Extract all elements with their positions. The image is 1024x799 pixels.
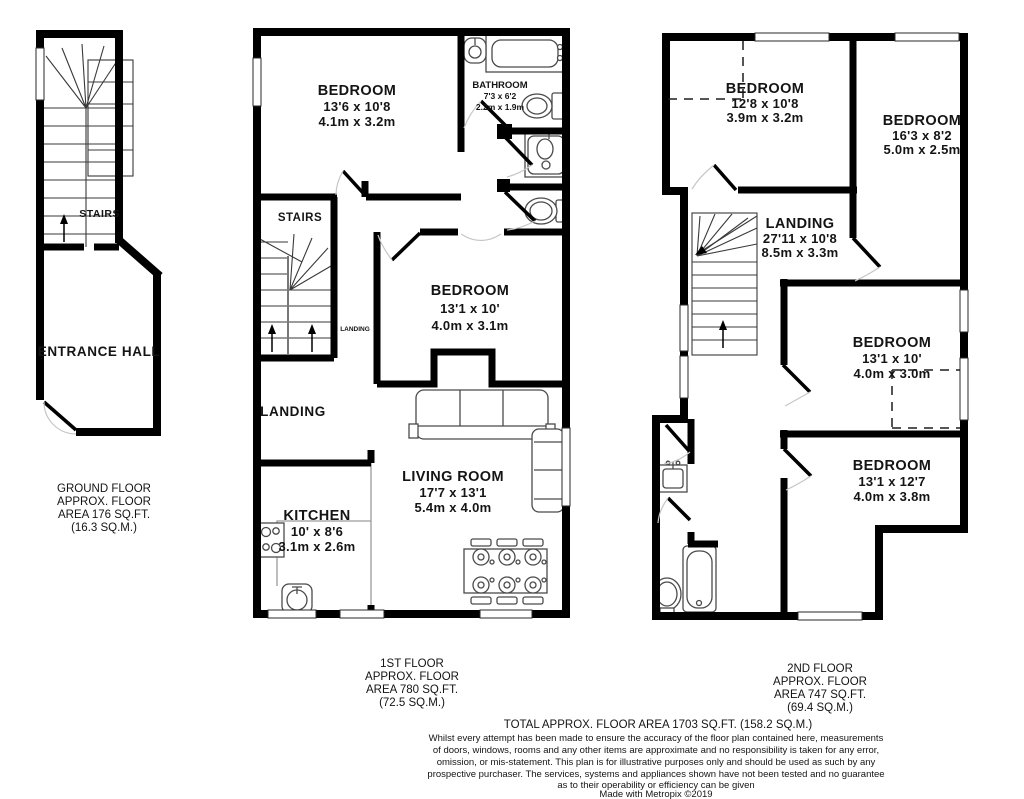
svg-text:BEDROOM: BEDROOM — [853, 458, 932, 474]
bedroom-front-label: BEDROOM 13'6 x 10'8 4.1m x 3.2m — [318, 83, 397, 129]
svg-text:7'3 x 6'2: 7'3 x 6'2 — [484, 91, 517, 101]
stairs-label: STAIRS — [79, 208, 120, 220]
svg-text:APPROX. FLOOR: APPROX. FLOOR — [57, 496, 151, 508]
dining-table-icon — [464, 539, 547, 604]
toilet-icon — [525, 198, 567, 224]
bathtub-icon — [486, 35, 566, 72]
bedroom-top-left-label: BEDROOM 12'8 x 10'8 3.9m x 3.2m — [726, 81, 805, 125]
sink-icon — [464, 38, 486, 63]
ground-floor-plan: STAIRS ENTRANCE HALL GROUND FLOOR APPROX… — [36, 30, 161, 534]
floorplan-image: STAIRS ENTRANCE HALL GROUND FLOOR APPROX… — [0, 0, 1024, 799]
svg-text:13'1 x 10': 13'1 x 10' — [862, 351, 922, 366]
total-area-text: TOTAL APPROX. FLOOR AREA 1703 SQ.FT. (15… — [504, 719, 813, 731]
kitchen-sink-icon — [282, 584, 312, 613]
svg-text:5.4m x 4.0m: 5.4m x 4.0m — [414, 500, 491, 515]
toilet-icon — [522, 93, 565, 119]
landing-label: LANDING 27'11 x 10'8 8.5m x 3.3m — [761, 216, 838, 260]
entrance-hall-label: ENTRANCE HALL — [38, 344, 161, 359]
svg-text:16'3 x 8'2: 16'3 x 8'2 — [892, 128, 952, 143]
ground-floor-walls — [36, 30, 161, 436]
svg-text:BEDROOM: BEDROOM — [853, 335, 932, 351]
ground-floor-area-caption: GROUND FLOOR APPROX. FLOOR AREA 176 SQ.F… — [57, 483, 151, 534]
svg-text:3.9m x 3.2m: 3.9m x 3.2m — [726, 110, 803, 125]
svg-text:10' x 8'6: 10' x 8'6 — [291, 524, 343, 539]
svg-text:(72.5 SQ.M.): (72.5 SQ.M.) — [379, 697, 445, 709]
svg-text:4.1m x 3.2m: 4.1m x 3.2m — [318, 114, 395, 129]
svg-text:27'11 x 10'8: 27'11 x 10'8 — [763, 231, 837, 246]
front-door — [44, 402, 76, 434]
svg-text:4.0m x 3.0m: 4.0m x 3.0m — [853, 366, 930, 381]
kitchen-label: KITCHEN 10' x 8'6 3.1m x 2.6m — [278, 508, 355, 554]
svg-text:of doors, windows, rooms and a: of doors, windows, rooms and any other i… — [433, 745, 879, 756]
footer: TOTAL APPROX. FLOOR AREA 1703 SQ.FT. (15… — [427, 719, 884, 799]
svg-text:13'1 x 12'7: 13'1 x 12'7 — [858, 474, 925, 489]
bathroom-label: BATHROOM 7'3 x 6'2 2.2m x 1.9m — [472, 80, 527, 112]
svg-text:1ST FLOOR: 1ST FLOOR — [380, 658, 444, 670]
svg-text:omission, or mis-statement. Th: omission, or mis-statement. This plan is… — [437, 757, 876, 768]
living-room-label: LIVING ROOM 17'7 x 13'1 5.4m x 4.0m — [402, 469, 504, 515]
svg-text:4.0m x 3.8m: 4.0m x 3.8m — [853, 489, 930, 504]
svg-text:BEDROOM: BEDROOM — [883, 113, 962, 129]
svg-text:8.5m x 3.3m: 8.5m x 3.3m — [761, 245, 838, 260]
stairs-icon — [258, 234, 331, 354]
svg-text:2ND FLOOR: 2ND FLOOR — [787, 663, 853, 675]
sink-icon — [659, 461, 687, 492]
credit-text: Made with Metropix ©2019 — [599, 789, 712, 799]
svg-text:BEDROOM: BEDROOM — [726, 81, 805, 97]
svg-text:2.2m x 1.9m: 2.2m x 1.9m — [476, 102, 525, 112]
svg-text:12'8 x 10'8: 12'8 x 10'8 — [731, 96, 798, 111]
floorplan-page: STAIRS ENTRANCE HALL GROUND FLOOR APPROX… — [0, 0, 1024, 799]
svg-text:3.1m x 2.6m: 3.1m x 2.6m — [278, 539, 355, 554]
svg-text:BEDROOM: BEDROOM — [431, 283, 510, 299]
svg-text:17'7 x 13'1: 17'7 x 13'1 — [419, 485, 486, 500]
svg-text:APPROX. FLOOR: APPROX. FLOOR — [365, 671, 459, 683]
first-floor-plan: BEDROOM 13'6 x 10'8 4.1m x 3.2m BATHROOM… — [253, 32, 570, 709]
svg-text:BEDROOM: BEDROOM — [318, 83, 397, 99]
bedroom-top-right-label: BEDROOM 16'3 x 8'2 5.0m x 2.5m — [883, 113, 962, 157]
landing-small-label: LANDING — [340, 326, 370, 333]
svg-text:GROUND FLOOR: GROUND FLOOR — [57, 483, 151, 495]
svg-text:13'6 x 10'8: 13'6 x 10'8 — [323, 99, 390, 114]
svg-text:5.0m x 2.5m: 5.0m x 2.5m — [883, 142, 960, 157]
svg-text:(16.3 SQ.M.): (16.3 SQ.M.) — [71, 522, 137, 534]
window — [36, 48, 44, 100]
svg-text:prospective purchaser. The ser: prospective purchaser. The services, sys… — [427, 769, 884, 780]
first-floor-area-caption: 1ST FLOOR APPROX. FLOOR AREA 780 SQ.FT. … — [365, 658, 459, 709]
bedroom-mid-right-label: BEDROOM 13'1 x 10' 4.0m x 3.0m — [853, 335, 932, 381]
bedroom-mid-label: BEDROOM 13'1 x 10' 4.0m x 3.1m — [431, 283, 510, 333]
svg-text:AREA 747 SQ.FT.: AREA 747 SQ.FT. — [774, 689, 866, 701]
svg-text:BATHROOM: BATHROOM — [472, 80, 527, 91]
svg-text:(69.4 SQ.M.): (69.4 SQ.M.) — [787, 702, 853, 714]
sink-icon — [525, 133, 567, 177]
svg-text:LIVING ROOM: LIVING ROOM — [402, 469, 504, 485]
svg-text:KITCHEN: KITCHEN — [283, 508, 350, 524]
armchair-sofa-icon — [532, 429, 564, 512]
svg-text:4.0m x 3.1m: 4.0m x 3.1m — [431, 318, 508, 333]
bathtub-icon — [683, 546, 716, 612]
stairs-label: STAIRS — [278, 212, 322, 224]
svg-text:AREA 176 SQ.FT.: AREA 176 SQ.FT. — [58, 509, 150, 521]
landing-label: LANDING — [260, 404, 326, 419]
svg-text:13'1 x 10': 13'1 x 10' — [440, 301, 500, 316]
second-floor-area-caption: 2ND FLOOR APPROX. FLOOR AREA 747 SQ.FT. … — [773, 663, 867, 714]
svg-text:AREA 780 SQ.FT.: AREA 780 SQ.FT. — [366, 684, 458, 696]
stairs-icon — [692, 213, 757, 355]
svg-text:APPROX. FLOOR: APPROX. FLOOR — [773, 676, 867, 688]
second-floor-plan: BEDROOM 12'8 x 10'8 3.9m x 3.2m BEDROOM … — [653, 33, 968, 714]
svg-text:Whilst every attempt has been: Whilst every attempt has been made to en… — [429, 733, 884, 744]
svg-text:LANDING: LANDING — [766, 216, 835, 232]
bedroom-bottom-right-label: BEDROOM 13'1 x 12'7 4.0m x 3.8m — [853, 458, 932, 504]
